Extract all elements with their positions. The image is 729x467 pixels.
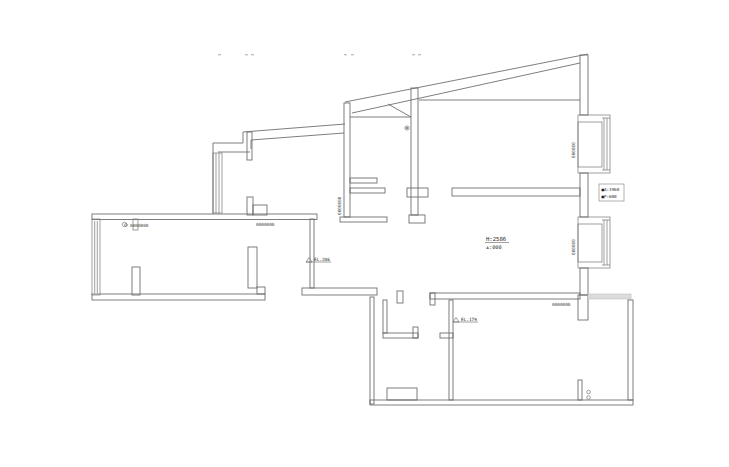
level-marker-room: EL.179	[453, 317, 478, 322]
info-box-line2: ■P:600	[602, 194, 618, 199]
middle-dividing-wall	[397, 291, 631, 305]
height-label-line1: H:2586	[486, 236, 506, 242]
left-room-walls	[92, 247, 265, 300]
bay1-window-dim-text: 000000	[571, 142, 576, 158]
entry-arm-walls	[213, 124, 345, 215]
info-box: ■A:1960 ■P:600	[599, 184, 624, 201]
bay2-window-dim-text: 000000	[571, 239, 576, 255]
kitchen-window-dim-text: 0000000	[337, 196, 342, 215]
level-marker-room-text: EL.179	[461, 317, 477, 322]
sloped-top-walls	[345, 54, 588, 117]
star-symbol	[404, 125, 410, 131]
height-label-line2: ±:000	[486, 244, 502, 250]
door-dim-right-text: 0000000	[256, 222, 275, 227]
height-label: H:2586 ±:000	[485, 236, 509, 250]
door-dim-left-text: 0000000	[130, 223, 149, 228]
shade-strip	[588, 294, 631, 299]
bottom-section-walls	[370, 297, 633, 405]
right-exterior-wall	[578, 55, 588, 320]
bay-window-top	[578, 115, 610, 173]
left-room-window	[92, 219, 100, 295]
floor-plan-sheet: 0000000 0000000 0000000 000000 000000 00…	[0, 0, 729, 467]
kitchen-walls	[340, 88, 428, 223]
floor-plan-canvas: 0000000 0000000 0000000 000000 000000 00…	[0, 0, 729, 467]
ceiling-beam	[452, 188, 580, 196]
info-box-line1: ■A:1960	[602, 187, 620, 192]
entry-window	[213, 153, 222, 213]
bay-window-bottom	[578, 217, 610, 268]
faint-dimension-ticks	[218, 54, 421, 55]
level-marker-hall-text: EL.206	[314, 257, 330, 262]
bottom-window-dim-text: 0000000	[552, 302, 571, 307]
